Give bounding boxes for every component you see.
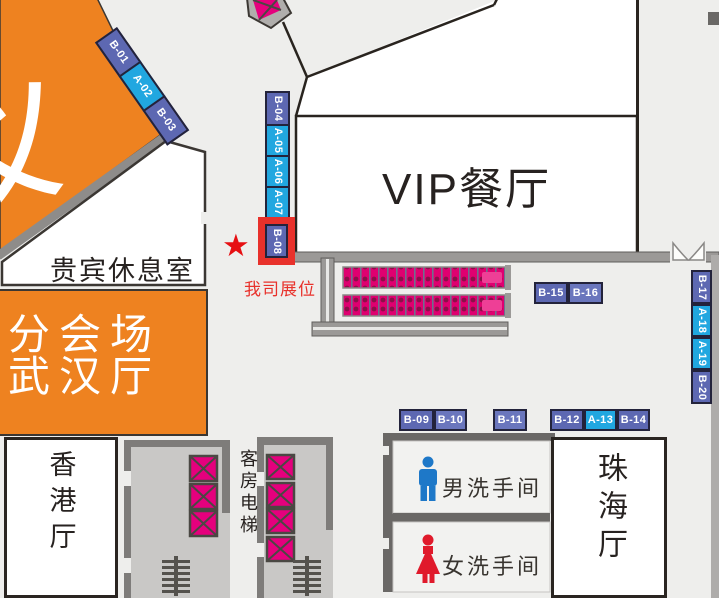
room-label-zhuhai: 珠海厅: [587, 440, 631, 595]
booth-b08-highlight: B-08: [258, 217, 295, 265]
wall-stub-topright: [708, 12, 719, 25]
booth-a13: A-13: [584, 409, 617, 431]
label-guest-elevator: 客房电梯: [235, 449, 261, 537]
booth-a05: A-05: [265, 124, 290, 157]
label-mens-restroom: 男洗手间: [442, 471, 542, 503]
booth-b11: B-11: [493, 409, 527, 431]
venue-floor-plan: 义: [0, 0, 719, 598]
lounge-door-gap: [201, 212, 210, 224]
booth-b08: B-08: [265, 224, 288, 258]
room-label-hongkong: 香港厅: [42, 440, 81, 595]
booth-b09: B-09: [399, 409, 434, 431]
branch-venue-line1: 分会场: [8, 315, 161, 357]
booth-a07: A-07: [265, 186, 290, 219]
booth-b17: B-17: [691, 270, 712, 304]
room-zhuhai-hall: 珠海厅: [551, 437, 667, 598]
star-marker: ★: [222, 230, 250, 261]
walkway-tables: [343, 265, 511, 318]
booth-b14: B-14: [617, 409, 650, 431]
room-hongkong-hall: 香港厅: [4, 437, 118, 598]
wall-right-edge: [711, 255, 719, 598]
booth-b15: B-15: [534, 282, 568, 304]
booth-b04: B-04: [265, 91, 290, 126]
booth-a06: A-06: [265, 155, 290, 188]
upper-hall-floor: [296, 0, 638, 116]
booth-b10: B-10: [434, 409, 467, 431]
our-booth-annotation: 我司展位: [244, 275, 316, 300]
booth-a19: A-19: [691, 337, 712, 370]
booth-a18: A-18: [691, 304, 712, 337]
booth-b20: B-20: [691, 370, 712, 404]
wall-horizontal-main: [294, 252, 719, 262]
branch-venue-line2: 武汉厅: [8, 357, 161, 399]
booth-b16: B-16: [568, 282, 603, 304]
room-branch-venue-wuhan: 分会场 武汉厅: [0, 289, 208, 436]
wall-upper-left: [283, 22, 307, 77]
booth-b12: B-12: [550, 409, 584, 431]
room-label-vip-restaurant: VIP餐厅: [296, 116, 637, 253]
label-womens-restroom: 女洗手间: [442, 549, 542, 581]
room-label-vip-lounge: 贵宾休息室: [35, 249, 210, 288]
